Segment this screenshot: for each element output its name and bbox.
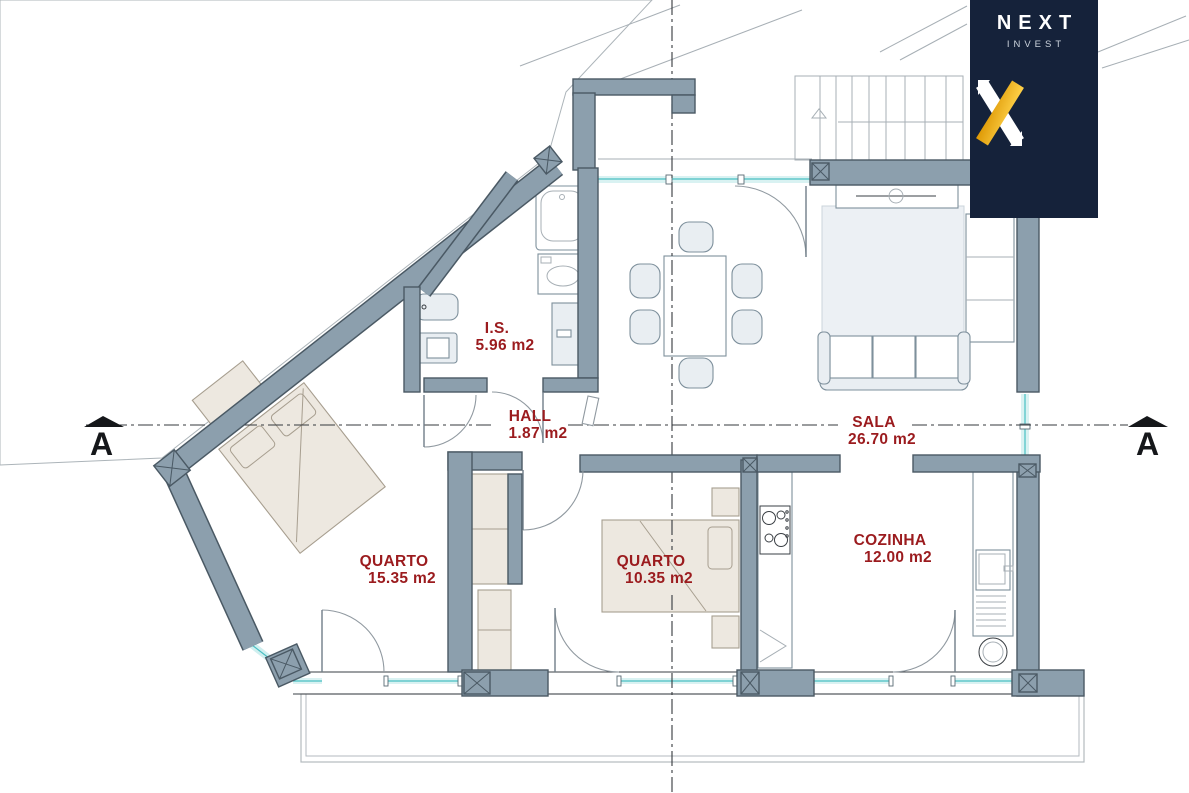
door-quarto1-balcony [322,610,384,672]
door-entry-sala [735,186,806,257]
brand-logo-mark-icon [970,78,1030,148]
brand-logo: NEXT INVEST [970,0,1098,218]
room-label-sala: SALA 26.70 m2 [794,414,954,448]
door-cozinha-balcony [893,610,955,672]
nightstand-top [712,488,739,516]
door-quarto1-hall [424,395,476,447]
door-quarto2-hall [523,470,583,530]
brand-name: NEXT [990,12,1078,35]
room-label-quarto1: QUARTO 15.35 m2 [314,553,474,587]
section-marker-right: A [1136,429,1159,459]
window-sala-top [598,159,813,184]
room-label-is: I.S. 5.96 m2 [437,320,557,354]
dining-table [664,256,726,356]
window-right-wall [1020,394,1030,460]
washbasin [416,294,458,320]
sideboard [836,185,958,208]
rug [822,206,964,346]
kitchen-counter-right [973,472,1013,666]
brand-subtitle: INVEST [1003,39,1065,50]
room-label-quarto2: QUARTO 10.35 m2 [571,553,731,587]
section-marker-left: A [90,429,113,459]
balcony [301,694,1084,762]
room-label-hall: HALL 1.87 m2 [470,408,590,442]
door-quarto2-balcony [555,608,619,672]
shelving-unit [966,214,1014,342]
kitchen-sink [976,550,1013,590]
floor-plan-page: I.S. 5.96 m2 HALL 1.87 m2 SALA 26.70 m2 … [0,0,1189,793]
nightstand-bottom [712,616,739,648]
sofa [818,332,970,390]
kitchen-counter-left [758,472,792,668]
washer-kitchen [979,638,1007,666]
dining-set [630,222,762,388]
room-label-cozinha: COZINHA 12.00 m2 [810,532,970,566]
staircase [795,76,963,160]
stair-direction-arrow-icon [812,109,826,118]
windows-bottom [293,672,1084,694]
